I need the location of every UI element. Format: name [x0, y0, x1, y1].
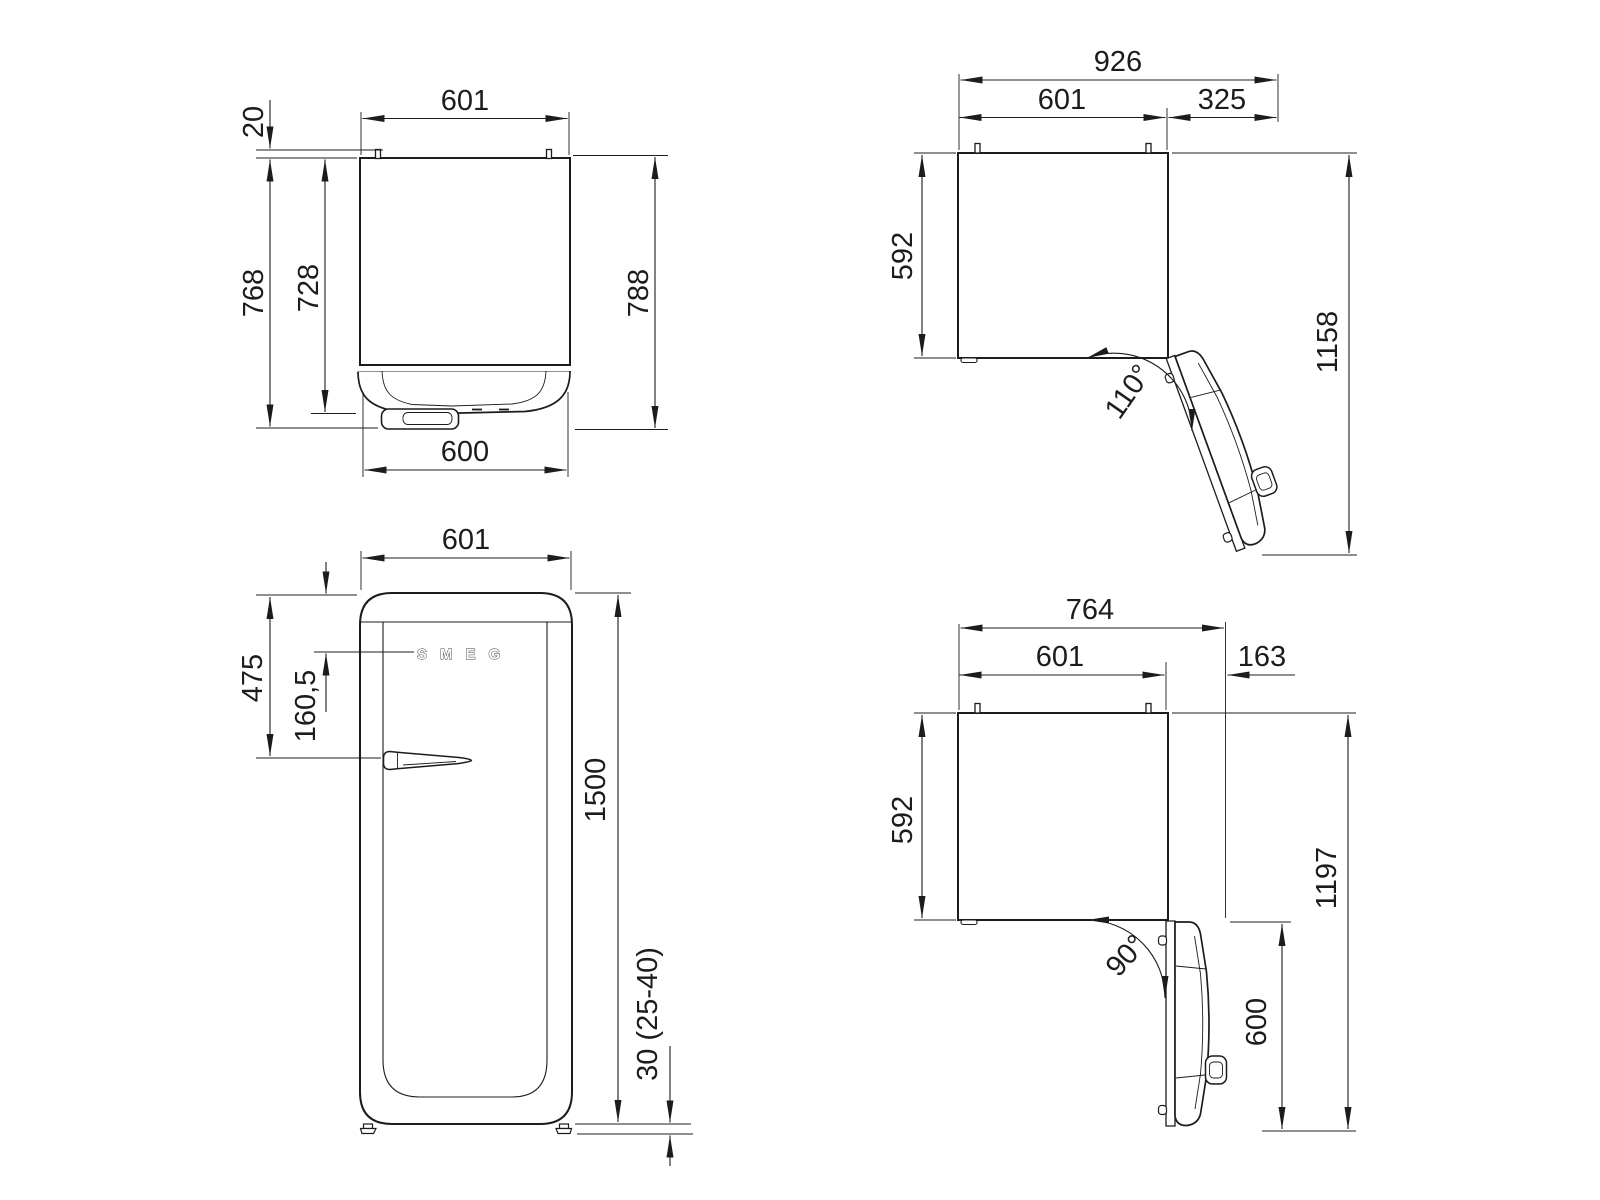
dimension-body-width: 601: [960, 641, 1167, 710]
top-view-door-closed: 601 20 768 728 788 600: [238, 85, 668, 477]
foot-detail: [961, 920, 977, 925]
dim-label: 926: [1094, 46, 1142, 78]
dimension-depth-to-door-face: 728: [293, 160, 356, 414]
dimension-width: 601: [361, 524, 571, 590]
dim-label: 163: [1238, 641, 1286, 673]
foot-detail: [961, 358, 977, 363]
dim-label: 728: [293, 264, 325, 312]
dimension-top-to-logo: 160,5: [290, 562, 414, 742]
fridge-body-top-outline: [958, 713, 1168, 920]
dim-label: 160,5: [290, 670, 322, 743]
hinge-pin-icon: [1146, 144, 1151, 154]
open-door-110: [1159, 338, 1293, 554]
front-view: SMEG 601 475 160,5: [237, 524, 693, 1166]
angle-label: 110°: [1099, 359, 1158, 425]
dimension-depth-overall: 788: [573, 156, 668, 430]
angle-label: 90°: [1100, 929, 1153, 983]
dim-label: 592: [887, 232, 919, 280]
dimension-width-top: 601: [361, 85, 569, 155]
dimension-door-depth-open: 600: [1230, 922, 1291, 1129]
dim-label: 1197: [1311, 847, 1343, 909]
top-view-door-open-110: 926 601 325 592 1158 110°: [887, 46, 1357, 555]
hinge-pin-icon: [376, 150, 381, 159]
dim-label: 601: [442, 524, 490, 556]
dim-label: 592: [887, 796, 919, 844]
dim-label: 601: [441, 85, 489, 117]
door-front-outline: [383, 622, 547, 1097]
smeg-logo: SMEG: [417, 646, 513, 663]
dimension-drawing-page: 601 20 768 728 788 600: [0, 0, 1600, 1200]
dim-label: 1158: [1312, 311, 1344, 373]
dimension-overall-width: 764: [959, 594, 1226, 918]
dim-label: 788: [623, 269, 655, 317]
dimension-feet-height: 30 (25-40): [577, 947, 693, 1166]
dimension-side-clearance: 163: [1228, 641, 1296, 675]
dim-label: 764: [1066, 594, 1114, 626]
hinge-pin-icon: [547, 150, 552, 159]
dim-label: 1500: [580, 758, 612, 823]
dim-label: 30 (25-40): [632, 947, 664, 1081]
handle-top-view: [382, 409, 459, 429]
fridge-body-top-outline: [360, 158, 570, 365]
dimension-body-depth: 592: [887, 153, 956, 358]
adjustable-foot: [361, 1124, 377, 1134]
dim-label: 325: [1198, 84, 1246, 116]
dimension-body-depth: 592: [887, 713, 956, 920]
dimension-body-width: 601: [960, 84, 1168, 150]
dim-label: 768: [238, 269, 270, 317]
dim-label: 600: [1241, 998, 1273, 1046]
door-top-outline: [358, 372, 570, 414]
top-view-door-open-90: 764 601 163 592 1197 600 90°: [887, 594, 1356, 1131]
dimension-side-clearance: 325: [1169, 84, 1277, 118]
dim-label: 20: [238, 106, 270, 138]
fridge-front-outline: [360, 593, 572, 1124]
door-handle: [384, 752, 472, 770]
hinge-pin-icon: [975, 144, 980, 154]
hinge-pin-icon: [975, 704, 980, 714]
dim-label: 475: [237, 654, 269, 702]
dimension-drawing: 601 20 768 728 788 600: [0, 0, 1600, 1200]
dim-label: 601: [1038, 84, 1086, 116]
fridge-body-top-outline: [958, 153, 1168, 358]
hinge-pin-icon: [1146, 704, 1151, 714]
dim-label: 601: [1036, 641, 1084, 673]
dim-label: 600: [441, 436, 489, 468]
open-door-90: [1159, 921, 1227, 1126]
dimension-door-angle: 90°: [1087, 920, 1165, 998]
adjustable-foot: [556, 1124, 572, 1134]
